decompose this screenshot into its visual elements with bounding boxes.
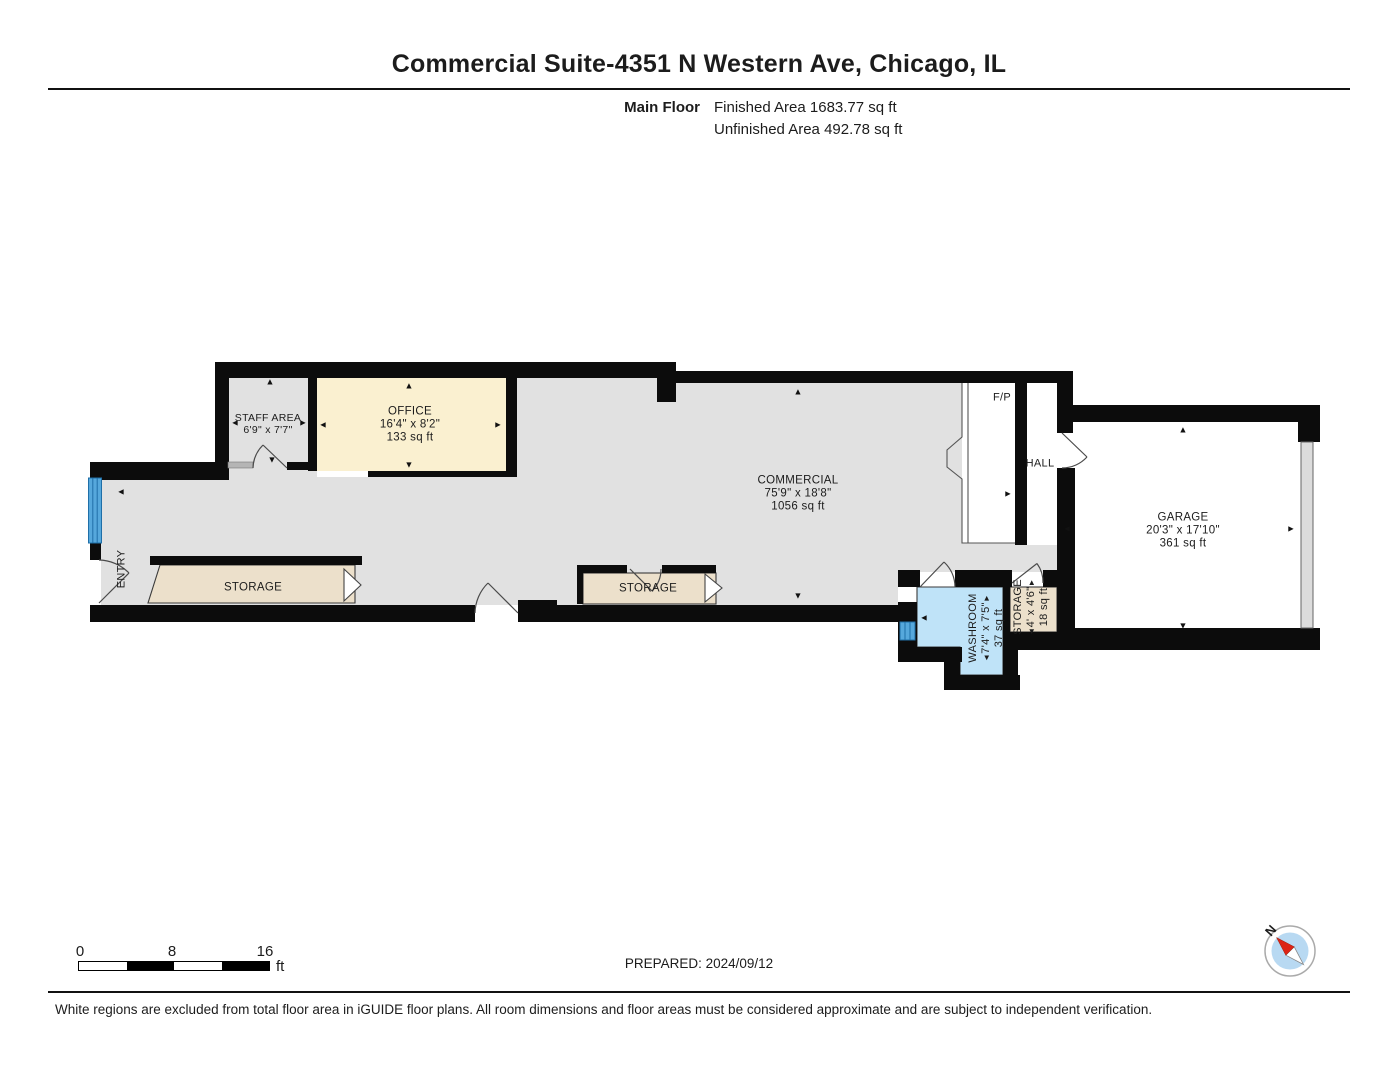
dimension-arrow-down-icon: ▼: [1179, 622, 1188, 631]
fireplace-label: F/P: [993, 392, 1011, 405]
prepared-date: PREPARED: 2024/09/12: [0, 956, 1398, 971]
dimension-arrow-right-icon: ►: [299, 419, 308, 428]
dimension-arrow-right-icon: ►: [494, 421, 503, 430]
entry-window: [89, 478, 102, 543]
dimension-arrow-left-icon: ◄: [231, 419, 240, 428]
dim-arrow-left-icon: ◄: [1026, 627, 1035, 635]
dimension-arrow-right-icon: ►: [1004, 490, 1013, 499]
footer-divider: [48, 991, 1350, 993]
dimension-arrow-down-icon: ▼: [268, 456, 277, 465]
dimension-arrow-left-icon: ◄: [117, 488, 126, 497]
fireplace-enclosure: [962, 383, 1015, 543]
garage-label: GARAGE20'3" x 17'10"361 sq ft: [1146, 512, 1220, 551]
storage-small-label: STORAGE ◄4' x 4'6"► 18 sq ft: [1012, 578, 1051, 635]
dimension-arrow-left-icon: ◄: [319, 421, 328, 430]
garage-door: [1301, 442, 1313, 628]
dimension-arrow-up-icon: ▲: [794, 388, 803, 397]
dim-arrow-right-icon: ►: [1026, 578, 1035, 586]
dimension-arrow-left-icon: ◄: [1063, 525, 1072, 534]
dim-arrow-right-icon: ►: [981, 594, 990, 602]
floorplan-page: Commercial Suite-4351 N Western Ave, Chi…: [0, 0, 1398, 1080]
dimension-arrow-down-icon: ▼: [405, 461, 414, 470]
office-label: OFFICE16'4" x 8'2"133 sq ft: [380, 406, 440, 445]
disclaimer-text: White regions are excluded from total fl…: [55, 1002, 1152, 1017]
commercial-label: COMMERCIAL75'9" x 18'8"1056 sq ft: [758, 475, 839, 514]
entry-label: ENTRY: [116, 550, 129, 589]
dimension-arrow-down-icon: ▼: [794, 592, 803, 601]
dimension-arrow-up-icon: ▲: [266, 378, 275, 387]
hall-label: HALL: [1026, 458, 1055, 471]
staff-area-label: STAFF AREA6'9" x 7'7": [235, 412, 301, 436]
staff-door-threshold: [228, 462, 253, 468]
washroom-window: [900, 622, 915, 640]
dimension-arrow-right-icon: ►: [1287, 525, 1296, 534]
dimension-arrow-left-icon: ◄: [920, 614, 929, 623]
washroom-label: WASHROOM ◄7'4" x 7'5"► 37 sq ft: [967, 593, 1006, 662]
dimension-arrow-up-icon: ▲: [1179, 426, 1188, 435]
storage-mid-label: STORAGE: [619, 583, 677, 596]
storage-left-label: STORAGE: [224, 582, 282, 595]
dimension-arrow-up-icon: ▲: [405, 382, 414, 391]
dim-arrow-left-icon: ◄: [981, 654, 990, 662]
